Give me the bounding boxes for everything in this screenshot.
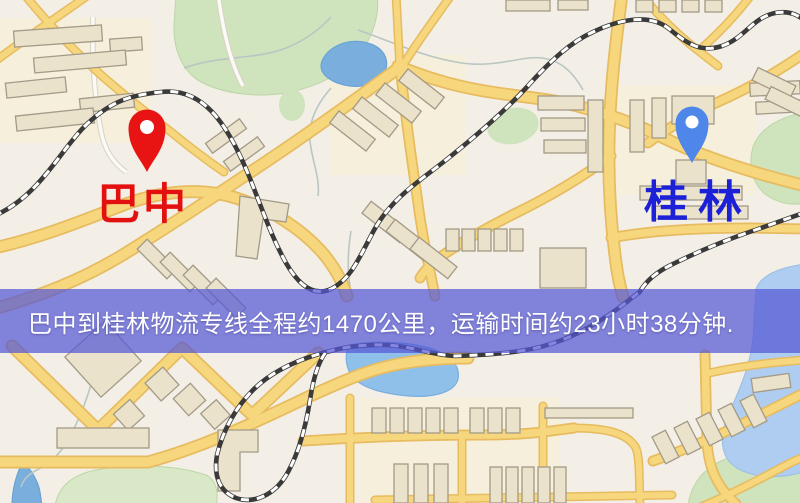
origin-pin-shape [129,109,166,172]
route-info-banner: 巴中到桂林物流专线全程约1470公里，运输时间约23小时38分钟. [0,289,800,353]
origin-label: 巴中 [97,181,189,229]
destination-label: 桂林 [644,178,752,227]
origin-pin-hole [140,120,154,134]
logistics-map-screenshot: 巴中 桂林 巴中到桂林物流专线全程约1470公里，运输时间约23小时38分钟. [0,0,800,503]
map-canvas: 巴中 桂林 [0,0,800,503]
route-info-text: 巴中到桂林物流专线全程约1470公里，运输时间约23小时38分钟. [28,304,734,339]
origin-pin [129,109,166,172]
destination-pin-hole [686,116,699,129]
map-art [0,0,800,503]
